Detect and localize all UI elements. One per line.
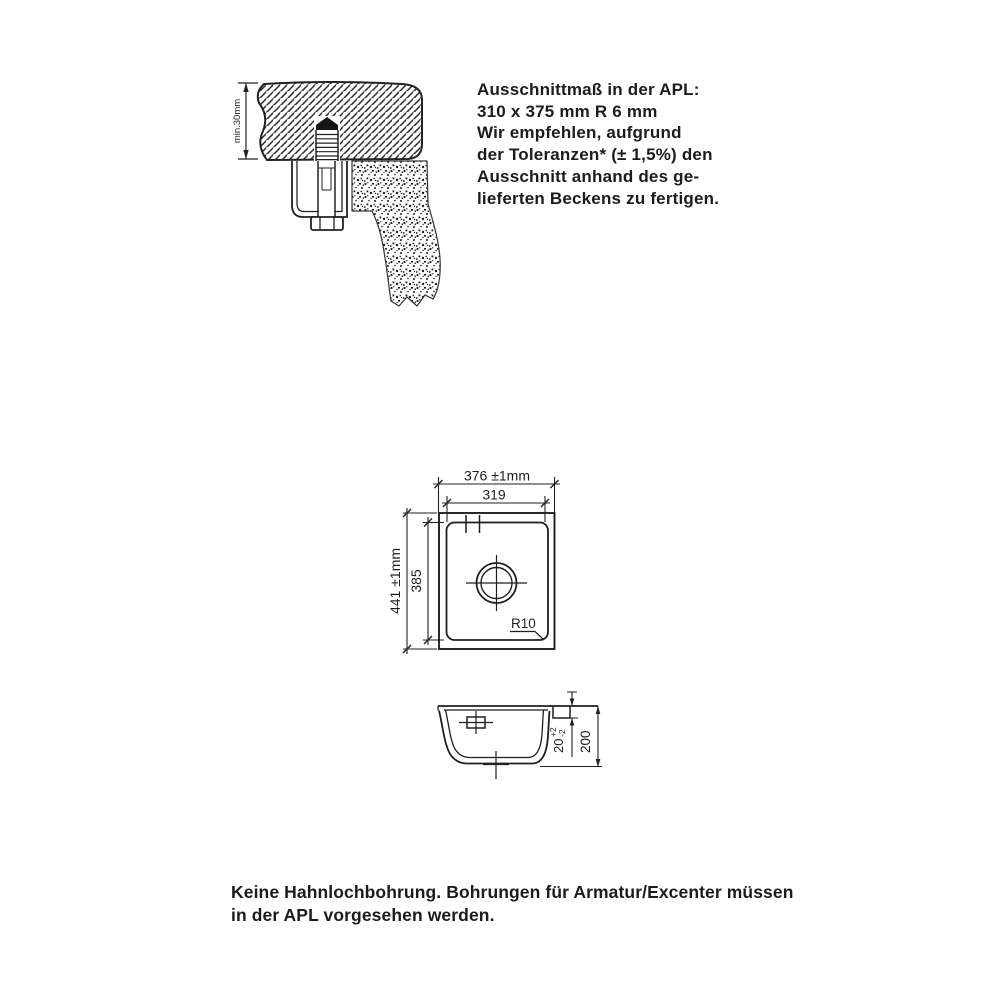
top-plan-view: 376 ±1mm 319 441 ±1mm 385 bbox=[387, 468, 560, 655]
rim-tolerance-minus: -2 bbox=[557, 729, 567, 737]
note-line: lieferten Beckens zu fertigen. bbox=[477, 188, 719, 210]
outer-height-label: 441 ±1mm bbox=[387, 548, 403, 614]
note-line: in der APL vorgesehen werden. bbox=[231, 904, 794, 927]
inner-width-label: 319 bbox=[482, 487, 506, 503]
note-line: Wir empfehlen, aufgrund bbox=[477, 122, 719, 144]
inner-height-label: 385 bbox=[408, 569, 424, 593]
tap-position-mark bbox=[459, 711, 493, 734]
rim-edge-section bbox=[553, 706, 570, 718]
side-section-view: 20 +2 -2 200 bbox=[438, 692, 602, 779]
stud-threads bbox=[316, 135, 338, 160]
spec-sheet-page: min.30mm 376 ±1mm bbox=[0, 0, 1000, 1000]
sink-material-section bbox=[352, 161, 440, 306]
cross-section-view: min.30mm bbox=[232, 82, 440, 306]
note-line: 310 x 375 mm R 6 mm bbox=[477, 101, 719, 123]
note-line: Keine Hahnlochbohrung. Bohrungen für Arm… bbox=[231, 881, 794, 904]
corner-radius-label: R10 bbox=[511, 616, 536, 631]
note-line: Ausschnitt anhand des ge- bbox=[477, 166, 719, 188]
drain-position-mark bbox=[483, 751, 509, 779]
threaded-stud bbox=[314, 116, 340, 161]
dim-rim-height: 20 +2 -2 bbox=[548, 692, 578, 757]
min-thickness-label: min.30mm bbox=[232, 99, 243, 143]
apl-cutout-note: Ausschnittmaß in der APL: 310 x 375 mm R… bbox=[477, 79, 719, 209]
clamp-bolt bbox=[311, 161, 343, 230]
dim-min-thickness: min.30mm bbox=[232, 83, 258, 159]
note-line: der Toleranzen* (± 1,5%) den bbox=[477, 144, 719, 166]
rim-height-label: 20 bbox=[551, 739, 566, 753]
drilling-note: Keine Hahnlochbohrung. Bohrungen für Arm… bbox=[231, 881, 794, 927]
total-depth-label: 200 bbox=[578, 730, 593, 753]
outer-width-label: 376 ±1mm bbox=[464, 468, 530, 484]
basin-profile bbox=[439, 710, 550, 764]
note-line: Ausschnittmaß in der APL: bbox=[477, 79, 719, 101]
clamp-nut bbox=[311, 217, 343, 230]
